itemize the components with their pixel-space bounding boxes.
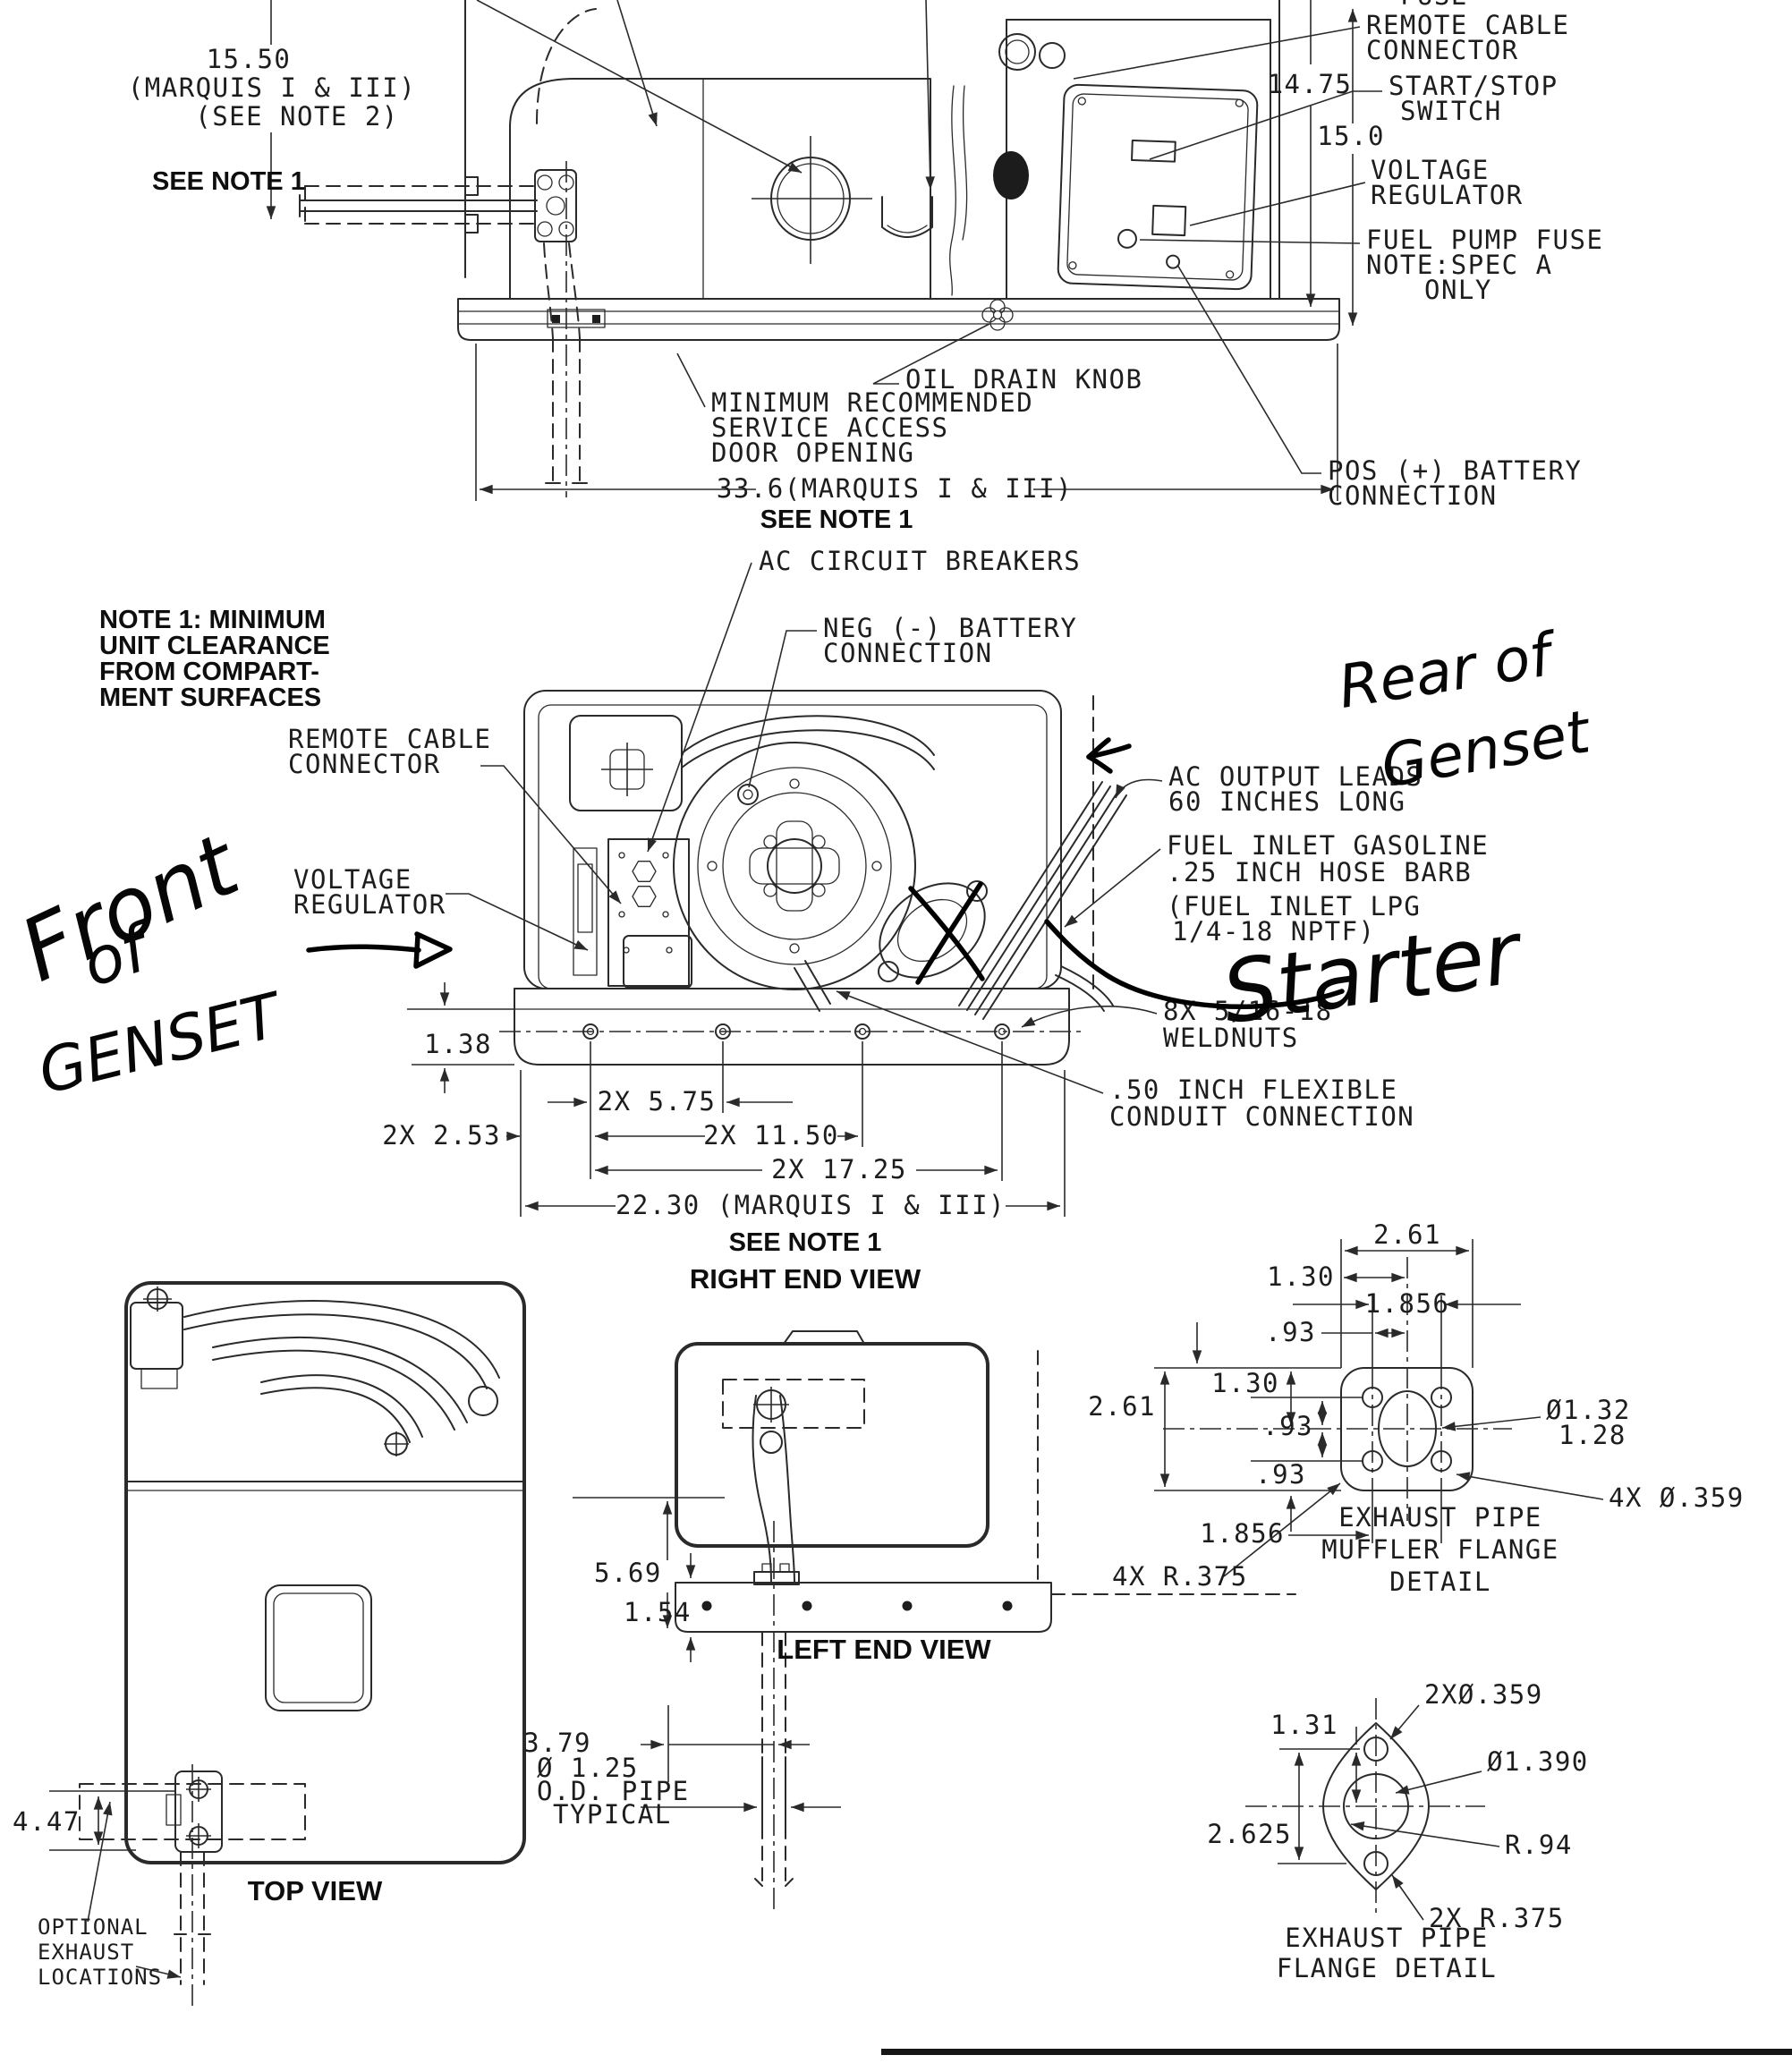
svg-text:.93: .93 <box>1262 1411 1313 1441</box>
flange-title-1: EXHAUST PIPE <box>1285 1923 1489 1953</box>
blower-housing <box>674 743 915 989</box>
top-view-annotations: 4.47 OPTIONAL EXHAUST LOCATIONS TOP VIEW <box>13 1791 383 1990</box>
dim-14-75: 14.75 <box>1268 69 1353 99</box>
label-2x-holes: 2XØ.359 <box>1390 1679 1543 1739</box>
svg-text:R.94: R.94 <box>1505 1830 1573 1860</box>
label-pos-battery: POS (+) BATTERY CONNECTION <box>1177 265 1582 511</box>
svg-text:1.856: 1.856 <box>1200 1518 1285 1549</box>
hose-loops <box>184 1301 499 1456</box>
svg-text:.50 INCH FLEXIBLE: .50 INCH FLEXIBLE <box>1109 1074 1397 1105</box>
right-end-view-annotations: AC CIRCUIT BREAKERS NEG (-) BATTERY CONN… <box>288 546 1489 1295</box>
svg-text:.93: .93 <box>1265 1317 1316 1347</box>
svg-text:FROM COMPART-: FROM COMPART- <box>99 658 319 686</box>
voltage-regulator-symbol <box>624 936 692 988</box>
label-ac-output-leads: AC OUTPUT LEADS 60 INCHES LONG <box>1116 761 1423 817</box>
svg-text:.25 INCH HOSE BARB: .25 INCH HOSE BARB <box>1167 857 1472 887</box>
svg-text:GENSET: GENSET <box>31 980 290 1108</box>
dim-2x-5-75: 2X 5.75 <box>548 1086 793 1117</box>
muffler-flange-title-1: EXHAUST PIPE <box>1338 1502 1542 1533</box>
left-end-view-title: LEFT END VIEW <box>777 1634 991 1665</box>
scan-artifact-line <box>881 2049 1792 2055</box>
svg-text:2.625: 2.625 <box>1207 1819 1292 1849</box>
svg-text:CONNECTOR: CONNECTOR <box>1366 35 1519 65</box>
muffler-flange-title-2: MUFFLER FLANGE <box>1321 1534 1558 1565</box>
svg-text:33.6(MARQUIS I & III): 33.6(MARQUIS I & III) <box>717 473 1073 504</box>
svg-text:REGULATOR: REGULATOR <box>293 889 446 920</box>
dim-93-top: .93 <box>1265 1317 1405 1347</box>
svg-text:2X 2.53: 2X 2.53 <box>382 1120 501 1151</box>
dim-15-50: 15.50 <box>207 44 292 74</box>
label-voltage-regulator-front: VOLTAGE REGULATOR <box>1190 155 1524 225</box>
svg-text:2.61: 2.61 <box>1088 1391 1156 1422</box>
label-pipe-od: Ø 1.25 O.D. PIPE TYPICAL <box>537 1753 841 1830</box>
ac-breaker-nuts <box>619 853 672 953</box>
exhaust-flange-front <box>535 170 576 242</box>
svg-text:2X 11.50: 2X 11.50 <box>703 1120 839 1151</box>
dim-93-upper-left: .93 <box>1262 1401 1322 1441</box>
svg-text:60 INCHES LONG: 60 INCHES LONG <box>1168 786 1406 817</box>
svg-text:Genset: Genset <box>1376 697 1596 802</box>
svg-text:MENT SURFACES: MENT SURFACES <box>99 684 321 712</box>
svg-text:REGULATOR: REGULATOR <box>1371 180 1524 210</box>
exhaust-elbow-clamp <box>752 1387 799 1584</box>
dim-15-0: 15.0 <box>1317 121 1385 151</box>
svg-text:2X 5.75: 2X 5.75 <box>598 1086 717 1117</box>
svg-text:AC CIRCUIT BREAKERS: AC CIRCUIT BREAKERS <box>759 546 1081 576</box>
dim-15-50-note2: (SEE NOTE 2) <box>195 101 399 132</box>
fuel-pump-fuse-symbol <box>1118 230 1137 249</box>
control-panel-front <box>1057 84 1258 289</box>
label-oil-drain-knob: OIL DRAIN KNOB <box>873 324 1142 395</box>
svg-text:TYPICAL: TYPICAL <box>553 1799 672 1830</box>
muffler-flange-title-3: DETAIL <box>1389 1567 1491 1597</box>
svg-text:EXHAUST: EXHAUST <box>38 1940 134 1965</box>
svg-text:LOCATIONS: LOCATIONS <box>38 1965 162 1990</box>
muffler-flange-detail: 2.61 1.30 1.856 .93 2.61 1.30 .93 <box>1088 1219 1745 1597</box>
svg-text:2XØ.359: 2XØ.359 <box>1424 1679 1543 1710</box>
air-intake-elbow <box>993 151 1029 200</box>
see-note-1-left: SEE NOTE 1 <box>152 167 305 196</box>
starter-x-mark <box>911 884 982 982</box>
scanned-genset-outline-drawing: FUSE 15.50 (MARQUIS I & III) (SEE NOTE 2… <box>0 0 1792 2072</box>
svg-text:1.54: 1.54 <box>624 1597 692 1627</box>
exhaust-flange-detail: 1.31 2.625 2XØ.359 Ø1.390 R.94 2X R.375 … <box>1207 1679 1589 1983</box>
dim-2x-2-53-and-11-50: 2X 2.53 2X 11.50 <box>382 1120 858 1151</box>
svg-text:1.30: 1.30 <box>1267 1261 1335 1292</box>
right-end-view-drawing <box>499 691 1126 1065</box>
svg-text:1.30: 1.30 <box>1211 1368 1279 1398</box>
svg-text:5.69: 5.69 <box>594 1558 662 1588</box>
ac-output-leads-lines <box>959 782 1126 1019</box>
svg-text:22.30 (MARQUIS I & III): 22.30 (MARQUIS I & III) <box>616 1190 1006 1220</box>
svg-text:4X Ø.359: 4X Ø.359 <box>1609 1482 1745 1513</box>
svg-text:CONNECTOR: CONNECTOR <box>288 749 441 779</box>
svg-text:2.61: 2.61 <box>1373 1219 1441 1250</box>
dim-22-30: 22.30 (MARQUIS I & III) <box>525 1190 1060 1220</box>
svg-text:4.47: 4.47 <box>13 1806 81 1837</box>
dim-1-30-top: 1.30 <box>1267 1261 1405 1292</box>
svg-text:NOTE 1: MINIMUM: NOTE 1: MINIMUM <box>99 606 326 634</box>
handwritten-front-of-genset: Front of GENSET <box>6 814 450 1108</box>
flange-title-2: FLANGE DETAIL <box>1277 1953 1497 1983</box>
svg-text:2X 17.25: 2X 17.25 <box>771 1154 907 1185</box>
note-1-block: NOTE 1: MINIMUM UNIT CLEARANCE FROM COMP… <box>99 606 330 712</box>
label-neg-battery: NEG (-) BATTERY CONNECTION <box>749 613 1077 787</box>
svg-text:CONNECTION: CONNECTION <box>823 638 993 668</box>
svg-text:Ø1.390: Ø1.390 <box>1487 1746 1589 1777</box>
see-note-1-width: SEE NOTE 1 <box>760 505 913 534</box>
dim-2x-17-25: 2X 17.25 <box>595 1154 998 1185</box>
svg-text:.93: .93 <box>1255 1459 1306 1490</box>
left-end-view-drawing <box>675 1331 1295 1915</box>
svg-text:DOOR OPENING: DOOR OPENING <box>711 437 915 468</box>
hand-arrow-left <box>1089 740 1129 771</box>
hand-arrow-right <box>309 934 450 966</box>
dim-4-47: 4.47 <box>13 1791 175 1850</box>
dim-1-856-top: 1.856 <box>1293 1288 1521 1319</box>
see-note-1-rev: SEE NOTE 1 <box>729 1228 882 1257</box>
svg-text:SWITCH: SWITCH <box>1400 96 1502 126</box>
svg-text:1.38: 1.38 <box>424 1029 492 1059</box>
dim-2-61-top: 2.61 <box>1345 1219 1469 1251</box>
label-voltage-regulator-rev: VOLTAGE REGULATOR <box>293 864 588 950</box>
dim-15-50-note: (MARQUIS I & III) <box>128 72 416 103</box>
label-ac-circuit-breakers: AC CIRCUIT BREAKERS <box>648 546 1081 852</box>
label-bore: Ø1.32 1.28 <box>1442 1395 1631 1450</box>
dim-2-61-left: 2.61 <box>1088 1371 1165 1487</box>
front-view-annotations: FUSE 15.50 (MARQUIS I & III) (SEE NOTE 2… <box>128 0 1604 534</box>
dim-1-38: 1.38 <box>424 982 492 1093</box>
svg-text:4X R.375: 4X R.375 <box>1112 1561 1248 1592</box>
fuel-pump-cluster <box>131 1287 183 1388</box>
neg-battery-terminal-symbol <box>738 785 758 804</box>
svg-text:CONNECTION: CONNECTION <box>1328 480 1498 511</box>
top-view-title: TOP VIEW <box>248 1875 383 1906</box>
label-fuel-pump-fuse: FUEL PUMP FUSE NOTE:SPEC A ONLY <box>1140 225 1603 305</box>
right-end-view-title: RIGHT END VIEW <box>690 1263 921 1295</box>
svg-text:ONLY: ONLY <box>1424 275 1492 305</box>
svg-text:1.28: 1.28 <box>1558 1420 1626 1450</box>
label-bore-1-390: Ø1.390 <box>1396 1746 1589 1793</box>
svg-text:OPTIONAL: OPTIONAL <box>38 1915 149 1940</box>
svg-text:1.31: 1.31 <box>1270 1710 1338 1740</box>
svg-text:1.856: 1.856 <box>1365 1288 1450 1319</box>
svg-text:CONDUIT CONNECTION: CONDUIT CONNECTION <box>1109 1101 1414 1132</box>
svg-text:FUEL INLET GASOLINE: FUEL INLET GASOLINE <box>1167 830 1489 861</box>
svg-text:UNIT CLEARANCE: UNIT CLEARANCE <box>99 632 330 660</box>
